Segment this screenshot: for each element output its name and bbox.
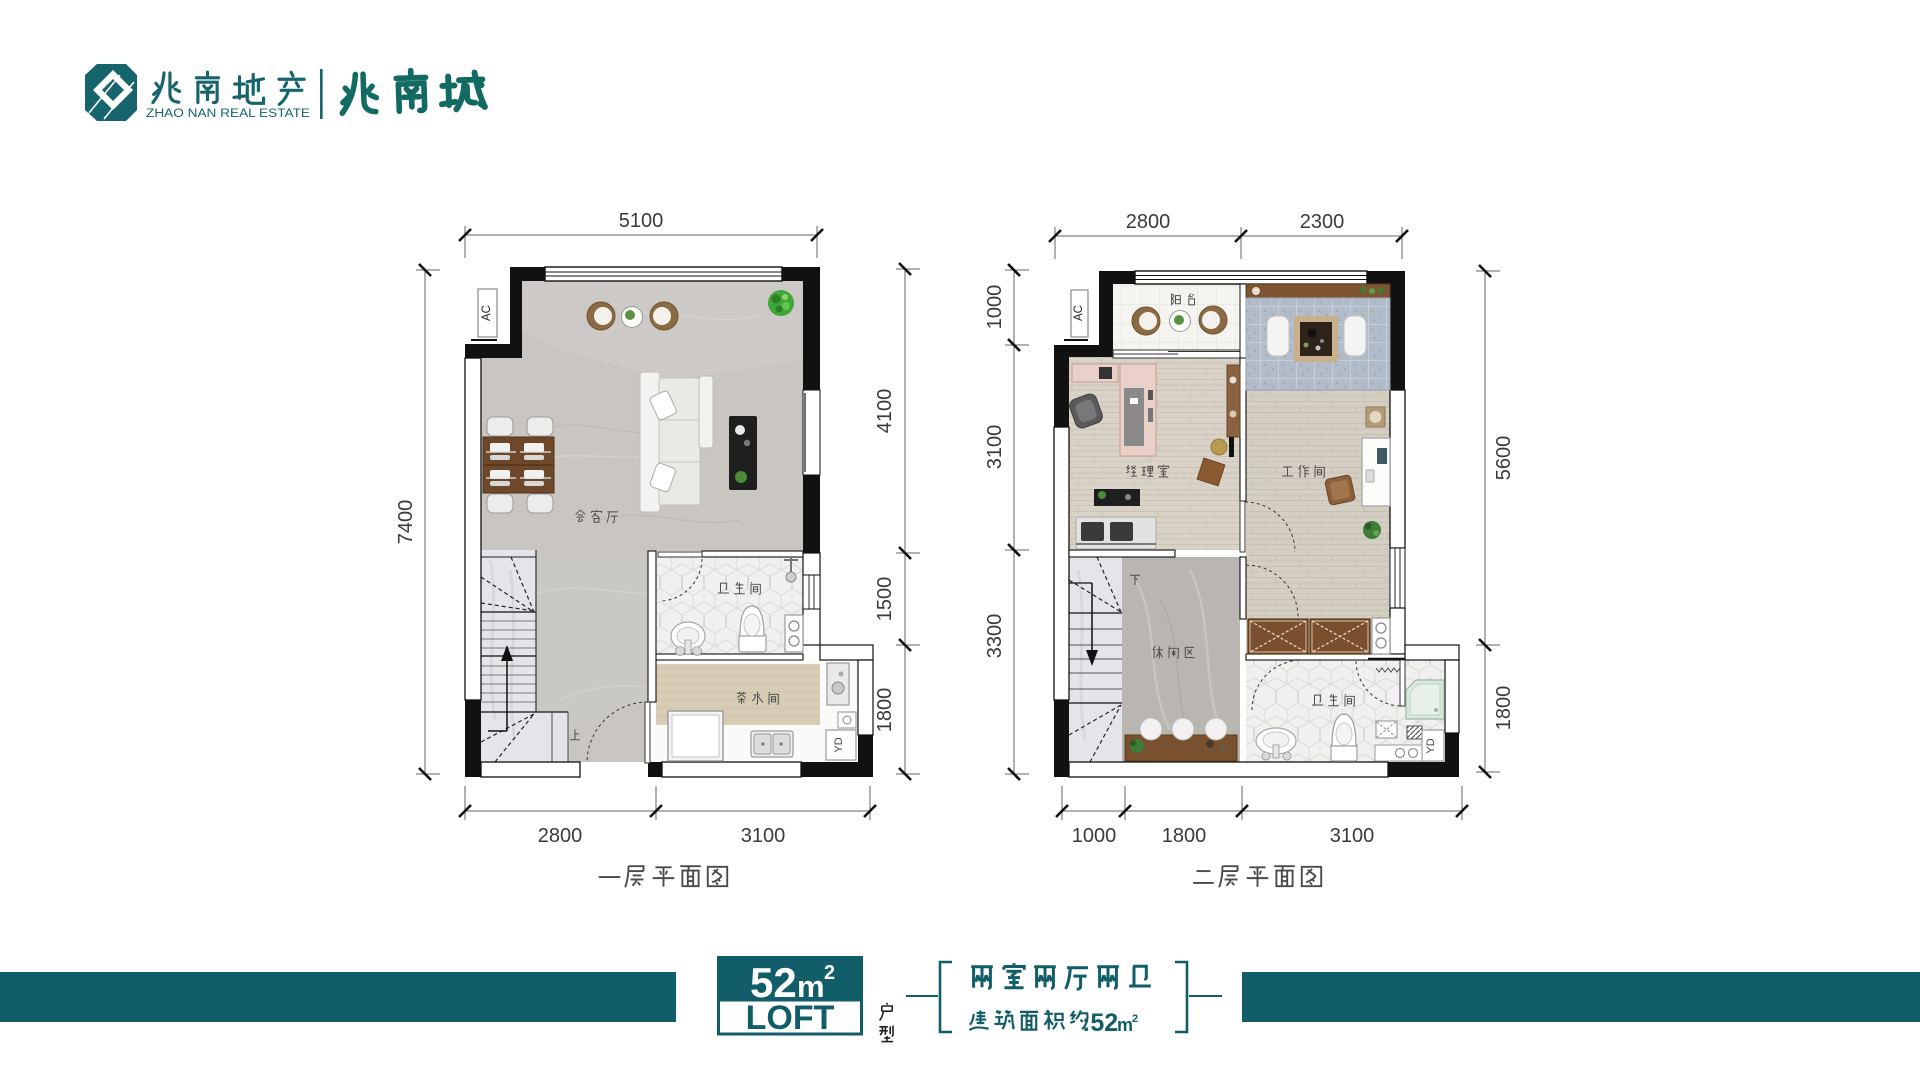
svg-text:3100: 3100 — [1330, 825, 1375, 847]
svg-text:3100: 3100 — [984, 425, 1006, 470]
svg-text:1800: 1800 — [1493, 686, 1515, 731]
svg-text:1800: 1800 — [874, 688, 896, 733]
svg-text:2: 2 — [824, 962, 835, 984]
svg-text:2800: 2800 — [538, 825, 583, 847]
svg-text:3100: 3100 — [741, 825, 786, 847]
svg-text:5600: 5600 — [1493, 436, 1515, 481]
svg-text:1000: 1000 — [984, 285, 1006, 330]
svg-text::52: :52 — [1082, 1009, 1118, 1037]
svg-text:4100: 4100 — [874, 389, 896, 434]
svg-text:2800: 2800 — [1126, 211, 1171, 233]
svg-text:1500: 1500 — [874, 577, 896, 622]
svg-text:2300: 2300 — [1300, 211, 1345, 233]
svg-text:1000: 1000 — [1072, 825, 1117, 847]
svg-text:AC: AC — [1073, 305, 1085, 321]
svg-text:3300: 3300 — [984, 614, 1006, 659]
svg-text:YD: YD — [1425, 738, 1437, 753]
svg-text:5100: 5100 — [619, 210, 664, 232]
svg-text:m: m — [1117, 1015, 1133, 1035]
svg-text:AC: AC — [481, 305, 493, 321]
svg-text:7400: 7400 — [395, 500, 417, 545]
svg-text:2: 2 — [1132, 1013, 1138, 1025]
svg-text:YD: YD — [833, 737, 845, 752]
svg-text:1800: 1800 — [1162, 825, 1207, 847]
svg-text:LOFT: LOFT — [746, 999, 835, 1037]
svg-text:ZHAO NAN REAL ESTATE: ZHAO NAN REAL ESTATE — [146, 108, 310, 120]
